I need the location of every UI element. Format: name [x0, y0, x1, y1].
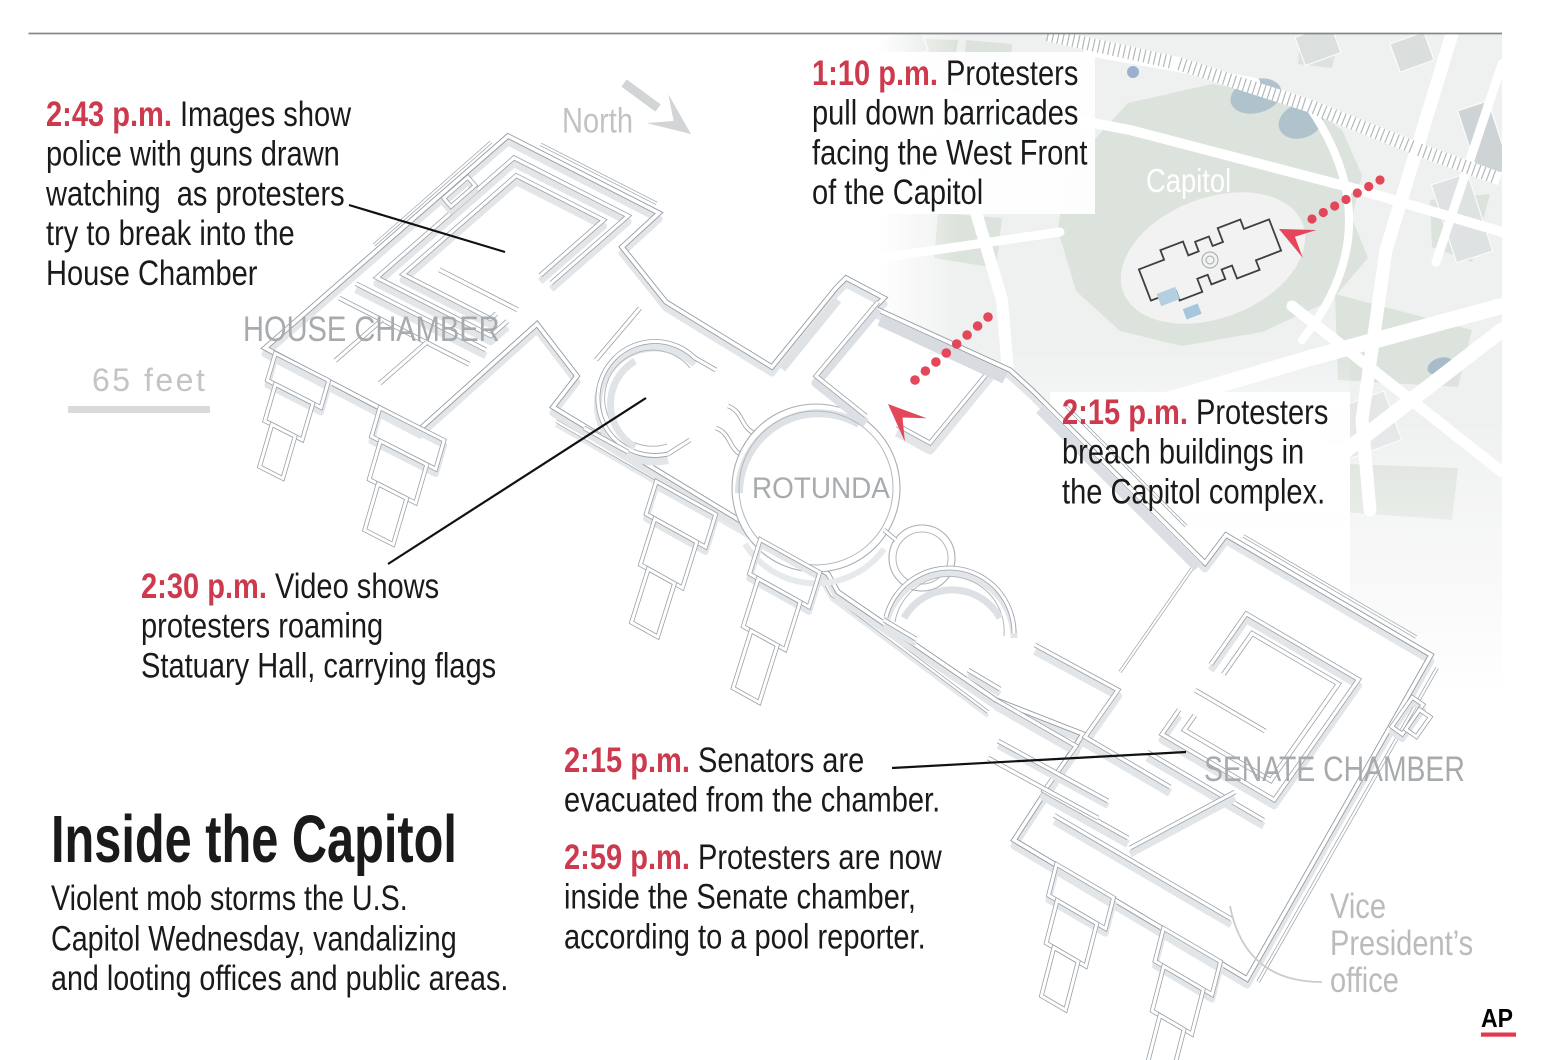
svg-text:office: office [1330, 960, 1399, 999]
svg-text:protesters roaming: protesters roaming [141, 606, 383, 645]
svg-text:65 feet: 65 feet [92, 362, 207, 398]
svg-text:ROTUNDA: ROTUNDA [752, 472, 891, 505]
svg-text:North: North [562, 101, 633, 140]
svg-text:the Capitol complex.: the Capitol complex. [1062, 472, 1325, 511]
svg-text:of the Capitol: of the Capitol [812, 173, 983, 212]
svg-text:Violent mob storms the U.S.: Violent mob storms the U.S. [51, 878, 408, 917]
svg-text:AP: AP [1481, 1003, 1513, 1033]
svg-text:2:15 p.m. Senators are: 2:15 p.m. Senators are [564, 740, 864, 779]
svg-text:SENATE CHAMBER: SENATE CHAMBER [1204, 749, 1465, 789]
svg-text:1:10 p.m. Protesters: 1:10 p.m. Protesters [812, 53, 1078, 92]
svg-text:2:30 p.m. Video shows: 2:30 p.m. Video shows [141, 566, 439, 605]
svg-text:Capitol Wednesday, vandalizing: Capitol Wednesday, vandalizing [51, 919, 457, 958]
svg-text:Inside the Capitol: Inside the Capitol [51, 803, 457, 877]
svg-text:breach buildings in: breach buildings in [1062, 432, 1304, 471]
svg-text:according to a pool reporter.: according to a pool reporter. [564, 917, 926, 956]
svg-text:2:15 p.m. Protesters: 2:15 p.m. Protesters [1062, 392, 1328, 431]
svg-text:police with guns drawn: police with guns drawn [46, 134, 340, 173]
svg-text:House Chamber: House Chamber [46, 253, 258, 292]
svg-text:watching as protesters: watching as protesters [45, 174, 345, 213]
svg-text:2:43 p.m. Images show: 2:43 p.m. Images show [46, 94, 352, 133]
svg-text:HOUSE CHAMBER: HOUSE CHAMBER [243, 309, 500, 348]
svg-text:try to break into the: try to break into the [46, 214, 295, 253]
svg-text:pull down barricades: pull down barricades [812, 93, 1078, 132]
svg-text:evacuated from the chamber.: evacuated from the chamber. [564, 780, 940, 819]
svg-text:and looting offices and public: and looting offices and public areas. [51, 958, 508, 997]
svg-text:2:59 p.m. Protesters are now: 2:59 p.m. Protesters are now [564, 837, 942, 876]
svg-text:Statuary Hall, carrying flags: Statuary Hall, carrying flags [141, 646, 496, 685]
svg-text:inside the Senate chamber,: inside the Senate chamber, [564, 877, 916, 916]
svg-text:facing the West Front: facing the West Front [812, 133, 1088, 172]
svg-text:President’s: President’s [1330, 923, 1473, 962]
svg-text:Vice: Vice [1330, 886, 1386, 925]
